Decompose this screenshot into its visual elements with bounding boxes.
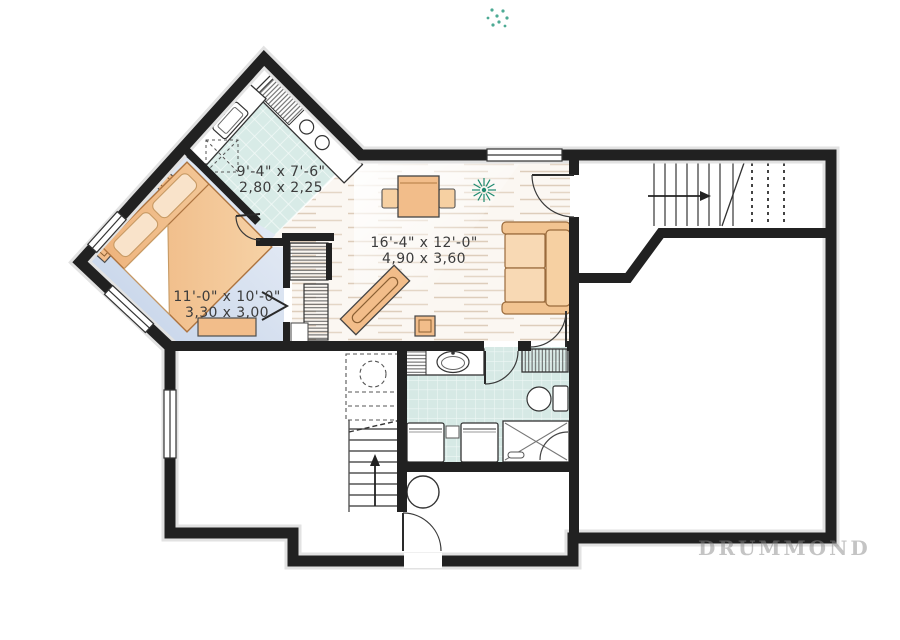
- furnace-icon: [290, 243, 328, 280]
- door-utility-exterior: [403, 513, 441, 551]
- core-wall-right: [326, 243, 332, 280]
- floor-plan-page: 9'-4" x 7'-6" 2,80 x 2,25 11'-0" x 10'-0…: [0, 0, 900, 640]
- future-space-dashed: [346, 354, 400, 420]
- water-tank-icon: [407, 476, 439, 508]
- toilet-icon: [527, 387, 551, 411]
- core-wall-left-upper: [283, 241, 290, 288]
- washer-icon: [407, 423, 444, 462]
- kitchen-dim-imperial: 9'-4" x 7'-6": [237, 164, 326, 180]
- window-top: [487, 149, 562, 161]
- table-icon: [398, 176, 439, 217]
- kitchen-dim-metric: 2,80 x 2,25: [239, 180, 323, 196]
- linen-shelves-icon: [404, 349, 426, 375]
- window-left: [164, 390, 176, 458]
- faucet-icon: [451, 351, 455, 355]
- bedroom-dim-metric: 3,30 x 3,00: [185, 305, 269, 321]
- living-dim-imperial: 16'-4" x 12'-0": [370, 235, 477, 251]
- side-table-icon: [415, 316, 435, 336]
- exterior-door-opening: [404, 553, 442, 568]
- closet-shelves-icon: [522, 349, 568, 372]
- shower-icon: [503, 421, 569, 462]
- floor-plan-drawing: 9'-4" x 7'-6" 2,80 x 2,25 11'-0" x 10'-0…: [0, 0, 900, 640]
- dining-chair-icon: [439, 189, 455, 208]
- core-wall-left-lower: [283, 322, 290, 347]
- dining-chair-icon: [382, 189, 398, 208]
- watermark: DRUMMOND: [698, 536, 871, 560]
- dryer-icon: [461, 423, 498, 462]
- stairs-center: [349, 420, 401, 512]
- decor-dots: [487, 8, 509, 27]
- stairs-top-right: [648, 162, 784, 226]
- living-dim-metric: 4,90 x 3,60: [382, 251, 466, 267]
- core-closet: [291, 323, 308, 344]
- sofa-icon: [502, 222, 570, 314]
- laundry-shelf: [446, 426, 459, 438]
- interior-wall-hall: [571, 233, 831, 278]
- bedroom-dim-imperial: 11'-0" x 10'-0": [173, 289, 280, 305]
- core-wall-top: [282, 233, 334, 241]
